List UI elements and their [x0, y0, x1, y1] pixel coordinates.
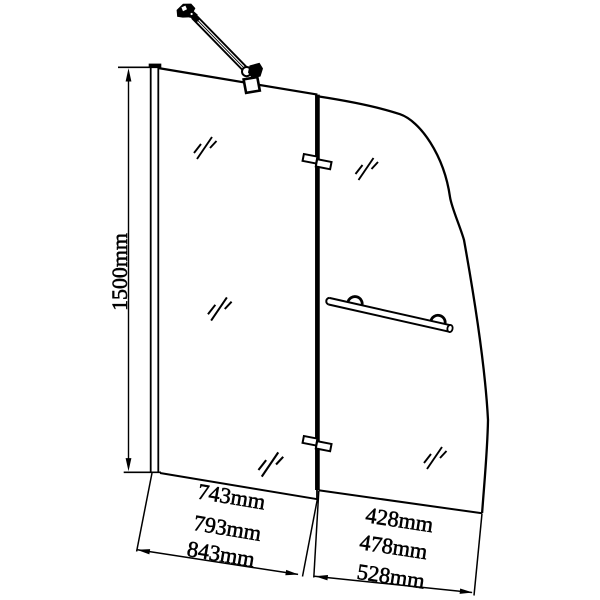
svg-text:1500mm: 1500mm [107, 233, 132, 311]
svg-text:743mm: 743mm [196, 479, 267, 515]
svg-text:528mm: 528mm [355, 559, 426, 594]
